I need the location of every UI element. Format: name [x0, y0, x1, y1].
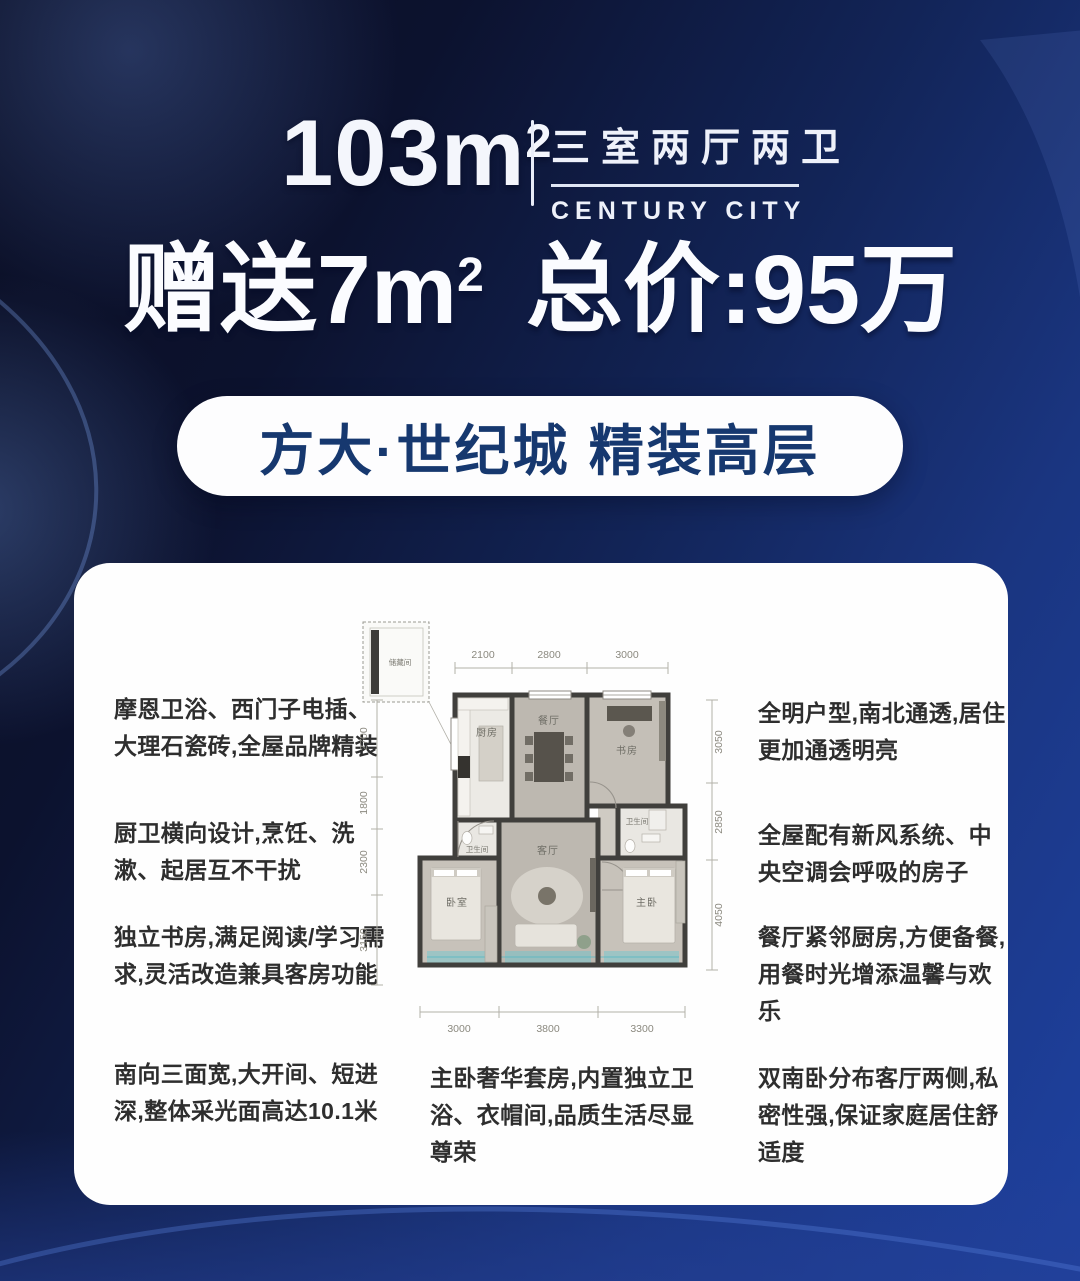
feature-fresh-air-system: 全屋配有新风系统、中央空调会呼吸的房子: [758, 817, 1008, 891]
room-label-bath2: 卫生间: [626, 816, 649, 826]
area-size-title: 103m2: [281, 106, 552, 200]
room-label-bath1: 卫生间: [466, 844, 489, 854]
brand-english-label: CENTURY CITY: [551, 197, 851, 226]
feature-master-suite: 主卧奢华套房,内置独立卫浴、衣帽间,品质生活尽显尊荣: [430, 1060, 696, 1171]
feature-dining-near-kitchen: 餐厅紧邻厨房,方便备餐,用餐时光增添温馨与欢乐: [758, 919, 1008, 1030]
storage-label: 储藏间: [389, 657, 412, 667]
floor-plan-drawing: 储藏间 2100 2800 3000: [337, 606, 737, 1048]
dim-top-2: 2800: [537, 649, 561, 661]
area-superscript: 2: [525, 114, 551, 167]
dims-left: [371, 700, 383, 985]
detail-card: 摩恩卫浴、西门子电插、大理石瓷砖,全屋品牌精装 厨卫横向设计,烹饪、洗漱、起居互…: [74, 563, 1008, 1205]
total-price-text: 总价:95万: [526, 235, 957, 344]
header-underline: [551, 184, 799, 187]
dim-right-2: 2850: [713, 810, 725, 834]
dims-top: [455, 662, 668, 674]
dim-bottom-3: 3300: [630, 1023, 654, 1035]
dim-left-2: 1800: [358, 791, 370, 815]
header-right-block: 三室两厅两卫 CENTURY CITY: [551, 117, 851, 226]
dim-bottom-1: 3000: [447, 1023, 471, 1035]
dim-left-1: 2700: [358, 727, 370, 751]
project-banner-label: 方大·世纪城 精装高层: [177, 396, 903, 496]
room-label-dining: 餐厅: [538, 714, 560, 727]
main-headline: 赠送7m2总价:95万: [0, 237, 1080, 344]
feature-south-facing: 南向三面宽,大开间、短进深,整体采光面高达10.1米: [114, 1056, 386, 1130]
room-label-kitchen: 厨房: [476, 726, 498, 739]
dim-bottom-2: 3800: [536, 1023, 560, 1035]
floor-plan: 储藏间 2100 2800 3000: [337, 606, 737, 1048]
balcony-glass: [427, 951, 679, 964]
room-label-bedroom: 卧室: [446, 896, 468, 909]
feature-bright-unit: 全明户型,南北通透,居住更加通透明亮: [758, 695, 1008, 769]
gift-area-text: 赠送7m: [123, 235, 457, 344]
gift-superscript: 2: [457, 249, 484, 302]
dim-top-1: 2100: [471, 649, 495, 661]
dim-right-1: 3050: [713, 730, 725, 754]
layout-type-label: 三室两厅两卫: [551, 117, 851, 173]
dims-bottom: [420, 1006, 685, 1018]
dim-left-3: 2300: [358, 850, 370, 874]
room-label-study: 书房: [616, 744, 638, 757]
real-estate-poster: 103m2 三室两厅两卫 CENTURY CITY 赠送7m2总价:95万 方大…: [0, 0, 1080, 1281]
dim-left-4: 3150: [358, 928, 370, 952]
project-banner: 方大·世纪城 精装高层: [177, 396, 903, 496]
dim-right-3: 4050: [713, 903, 725, 927]
room-label-living: 客厅: [537, 844, 559, 857]
header-divider: [531, 120, 534, 206]
dim-top-3: 3000: [615, 649, 639, 661]
room-label-master: 主卧: [636, 896, 658, 909]
feature-twin-south-bedrooms: 双南卧分布客厅两侧,私密性强,保证家庭居住舒适度: [758, 1060, 1008, 1171]
